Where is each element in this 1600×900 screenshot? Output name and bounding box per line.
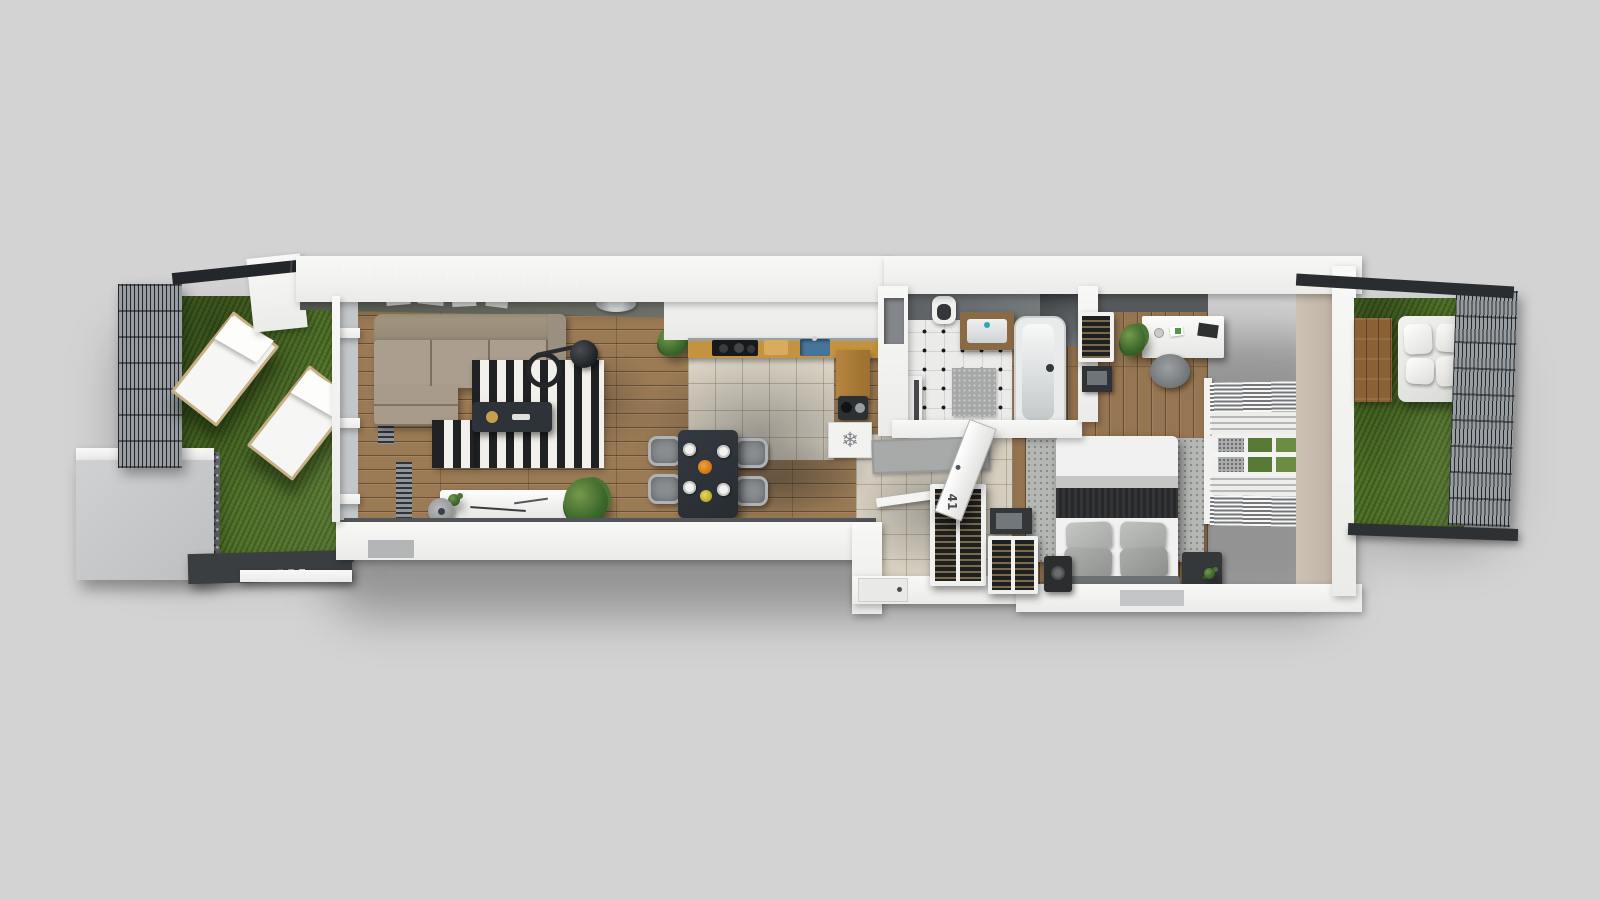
floor-plan-render: ❄ bbox=[0, 0, 1600, 900]
canopy-beam-top bbox=[1296, 274, 1514, 299]
right-mesh-fence bbox=[1448, 289, 1518, 527]
right-terrace bbox=[0, 0, 1600, 900]
wood-deck bbox=[1354, 318, 1392, 402]
outdoor-pillow bbox=[1405, 357, 1434, 384]
outdoor-pillow bbox=[1403, 323, 1433, 354]
